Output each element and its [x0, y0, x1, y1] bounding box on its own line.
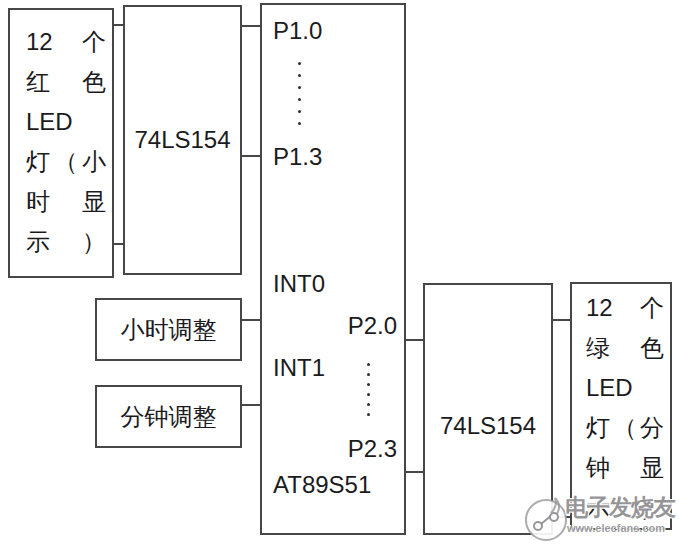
green-led-line-6: 示） — [586, 488, 664, 528]
pin-p2-0: P2.0 — [348, 314, 397, 338]
pin-p1-0: P1.0 — [273, 19, 322, 43]
minute-adjust-block: 分钟调整 — [95, 385, 242, 448]
red-led-block: 12 个 红色 LED 灯（小 时 显 示） — [8, 8, 114, 278]
hour-adjust-label: 小时调整 — [121, 314, 217, 346]
wire-redled-decoder-bottom — [113, 243, 123, 245]
minute-adjust-label: 分钟调整 — [121, 401, 217, 433]
ellipsis-dots-p1 — [298, 62, 301, 134]
pin-int0: INT0 — [273, 272, 325, 296]
pin-p2-3: P2.3 — [348, 437, 397, 461]
red-led-line-1: 12 个 — [26, 22, 106, 62]
ellipsis-dots-p2 — [367, 363, 370, 423]
green-led-line-1: 12 个 — [586, 288, 664, 328]
wire-redled-decoder-top — [113, 24, 123, 26]
red-led-line-5: 时 显 — [26, 182, 106, 222]
wire-decoder-mcu-p13 — [241, 155, 260, 157]
green-led-line-3: LED — [586, 368, 664, 408]
wire-minute-mcu-int1 — [241, 404, 260, 406]
red-led-line-4: 灯（小 — [26, 142, 106, 182]
wire-mcu-decoder-p23 — [405, 471, 423, 473]
mcu-chip-label: AT89S51 — [273, 473, 371, 497]
pin-int1: INT1 — [273, 356, 325, 380]
hour-adjust-block: 小时调整 — [95, 298, 242, 361]
red-led-line-6: 示） — [26, 222, 106, 262]
decoder-left-block: 74LS154 — [123, 5, 242, 275]
green-led-line-2: 绿 色 — [586, 328, 664, 368]
pin-p1-3: P1.3 — [273, 145, 322, 169]
decoder-right-label: 74LS154 — [440, 412, 536, 440]
block-diagram: 12 个 红色 LED 灯（小 时 显 示） 74LS154 P1.0 P1.3… — [0, 0, 679, 547]
wire-decoder-greenled-top — [552, 319, 570, 321]
wire-decoder-mcu-p10 — [241, 25, 260, 27]
red-led-line-3: LED — [26, 102, 106, 142]
green-led-block: 12 个 绿 色 LED 灯（分 钟 显 示） — [570, 282, 672, 530]
wire-hour-mcu-int0 — [241, 319, 260, 321]
decoder-left-label: 74LS154 — [134, 126, 230, 154]
red-led-line-2: 红色 — [26, 62, 106, 102]
green-led-line-5: 钟 显 — [586, 448, 664, 488]
decoder-right-block: 74LS154 — [423, 283, 553, 535]
green-led-line-4: 灯（分 — [586, 408, 664, 448]
wire-decoder-greenled-bottom — [552, 516, 570, 518]
mcu-block: P1.0 P1.3 INT0 P2.0 INT1 P2.3 AT89S51 — [260, 3, 406, 535]
wire-mcu-decoder-p20 — [405, 339, 423, 341]
